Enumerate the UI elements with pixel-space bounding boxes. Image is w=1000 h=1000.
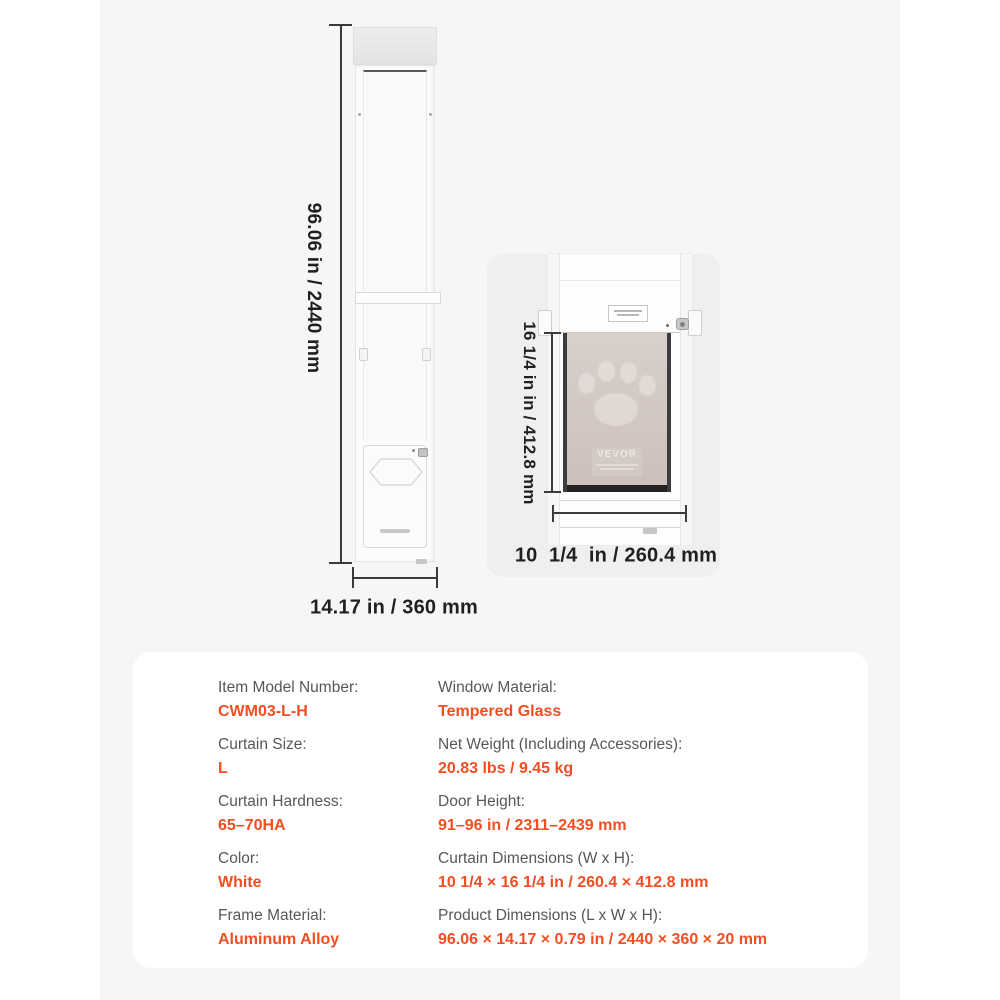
screw-right <box>429 113 432 116</box>
spec-label: Product Dimensions (L x W x H): <box>438 906 858 926</box>
spec-value: Tempered Glass <box>438 701 858 722</box>
door-top-bracket <box>353 27 437 65</box>
height-dimension-tick-top <box>329 24 352 26</box>
flap-width-label: 10 1/4 in / 260.4 mm <box>515 545 717 568</box>
spec-label: Curtain Size: <box>218 735 428 755</box>
spec-column-left: Item Model Number: CWM03-L-H Curtain Siz… <box>218 678 428 950</box>
spec-value: 10 1/4 × 16 1/4 in / 260.4 × 412.8 mm <box>438 872 858 893</box>
width-dimension-line <box>353 577 437 579</box>
door-frame <box>355 65 435 562</box>
spec-label: Door Height: <box>438 792 858 812</box>
flap-track-right <box>667 333 671 492</box>
spec-label: Curtain Hardness: <box>218 792 428 812</box>
spec-value: CWM03-L-H <box>218 701 428 722</box>
bottom-frame-seam <box>560 527 680 528</box>
spec-row-curtain-dimensions: Curtain Dimensions (W x H): 10 1/4 × 16 … <box>438 849 858 893</box>
screw-left <box>358 113 361 116</box>
spec-value: 20.83 lbs / 9.45 kg <box>438 758 858 779</box>
pet-flap <box>363 445 427 548</box>
door-crossbar <box>355 292 441 304</box>
spec-label: Color: <box>218 849 428 869</box>
spec-row-window-material: Window Material: Tempered Glass <box>438 678 858 722</box>
paw-print-toe <box>639 375 656 396</box>
spec-row-product-dimensions: Product Dimensions (L x W x H): 96.06 × … <box>438 906 858 950</box>
bottom-frame-seam <box>560 500 680 501</box>
spec-row-net-weight: Net Weight (Including Accessories): 20.8… <box>438 735 858 779</box>
door-height-label: 96.06 in / 2440 mm <box>302 203 324 373</box>
spec-row-frame-material: Frame Material: Aluminum Alloy <box>218 906 428 950</box>
flap-brand-bar <box>380 529 410 533</box>
height-dimension-tick-bottom <box>329 562 352 564</box>
flap-width-tick-right <box>685 505 687 522</box>
detail-lock-screw <box>666 324 669 327</box>
height-dimension-line <box>340 25 342 563</box>
spec-label: Curtain Dimensions (W x H): <box>438 849 858 869</box>
flap-emboss-hexagon <box>369 458 423 486</box>
flap-lock-knob <box>418 448 428 457</box>
paw-print-pad <box>594 393 638 426</box>
spec-label: Window Material: <box>438 678 858 698</box>
glass-watermark: VEVOR <box>592 448 642 476</box>
spec-row-curtain-size: Curtain Size: L <box>218 735 428 779</box>
mount-wing-right <box>688 310 702 336</box>
door-window-opening <box>363 70 427 441</box>
detail-rail-left <box>548 254 560 545</box>
paw-print-toe <box>598 361 615 382</box>
detail-bottom-tag <box>643 528 657 534</box>
spec-row-item-model-number: Item Model Number: CWM03-L-H <box>218 678 428 722</box>
spec-value: Aluminum Alloy <box>218 929 428 950</box>
spec-row-door-height: Door Height: 91–96 in / 2311–2439 mm <box>438 792 858 836</box>
spec-value: L <box>218 758 428 779</box>
flap-height-tick-top <box>544 332 561 334</box>
spec-value: 91–96 in / 2311–2439 mm <box>438 815 858 836</box>
spec-card: Item Model Number: CWM03-L-H Curtain Siz… <box>133 652 868 968</box>
spec-value: White <box>218 872 428 893</box>
spec-label: Item Model Number: <box>218 678 428 698</box>
paw-print-toe <box>620 362 637 383</box>
door-width-label: 14.17 in / 360 mm <box>310 597 478 620</box>
spec-row-curtain-hardness: Curtain Hardness: 65–70HA <box>218 792 428 836</box>
flap-height-dimension-line <box>551 333 553 492</box>
flap-height-label: 16 1/4 in in / 412.8 mm <box>519 321 539 504</box>
flap-glass: VEVOR <box>567 333 667 485</box>
flap-bottom-seal <box>567 485 667 492</box>
detail-lock-knob <box>676 318 689 330</box>
detail-flap-housing <box>560 254 680 333</box>
flap-width-dimension-line <box>553 512 686 514</box>
clip-right <box>422 348 431 361</box>
width-dimension-tick-right <box>436 567 438 588</box>
spec-row-color: Color: White <box>218 849 428 893</box>
flap-height-tick-bottom <box>544 491 561 493</box>
spec-column-right: Window Material: Tempered Glass Net Weig… <box>438 678 858 950</box>
spec-label: Frame Material: <box>218 906 428 926</box>
glass-watermark-text: VEVOR <box>592 448 642 462</box>
spec-value: 96.06 × 14.17 × 0.79 in / 2440 × 360 × 2… <box>438 929 858 950</box>
spec-value: 65–70HA <box>218 815 428 836</box>
detail-photo: VEVOR <box>548 254 692 545</box>
instruction-label <box>608 305 648 322</box>
flap-lock-screw <box>412 449 415 452</box>
paw-print-toe <box>578 373 595 394</box>
housing-seam <box>560 280 680 281</box>
flap-width-tick-left <box>552 505 554 522</box>
detail-rail-right <box>680 254 692 545</box>
width-dimension-tick-left <box>352 567 354 588</box>
door-bottom-tag <box>416 559 427 564</box>
spec-label: Net Weight (Including Accessories): <box>438 735 858 755</box>
clip-left <box>359 348 368 361</box>
